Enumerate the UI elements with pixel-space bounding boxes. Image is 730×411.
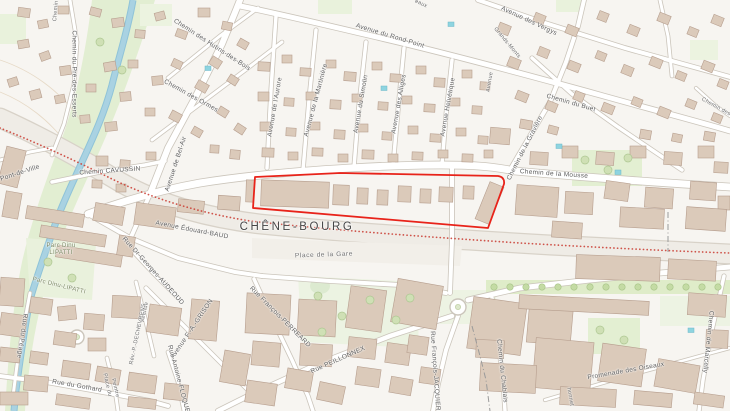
map[interactable]: CheminChemin du Pré-des-EssertsChemin de… <box>0 0 730 411</box>
map-canvas[interactable] <box>0 0 730 411</box>
